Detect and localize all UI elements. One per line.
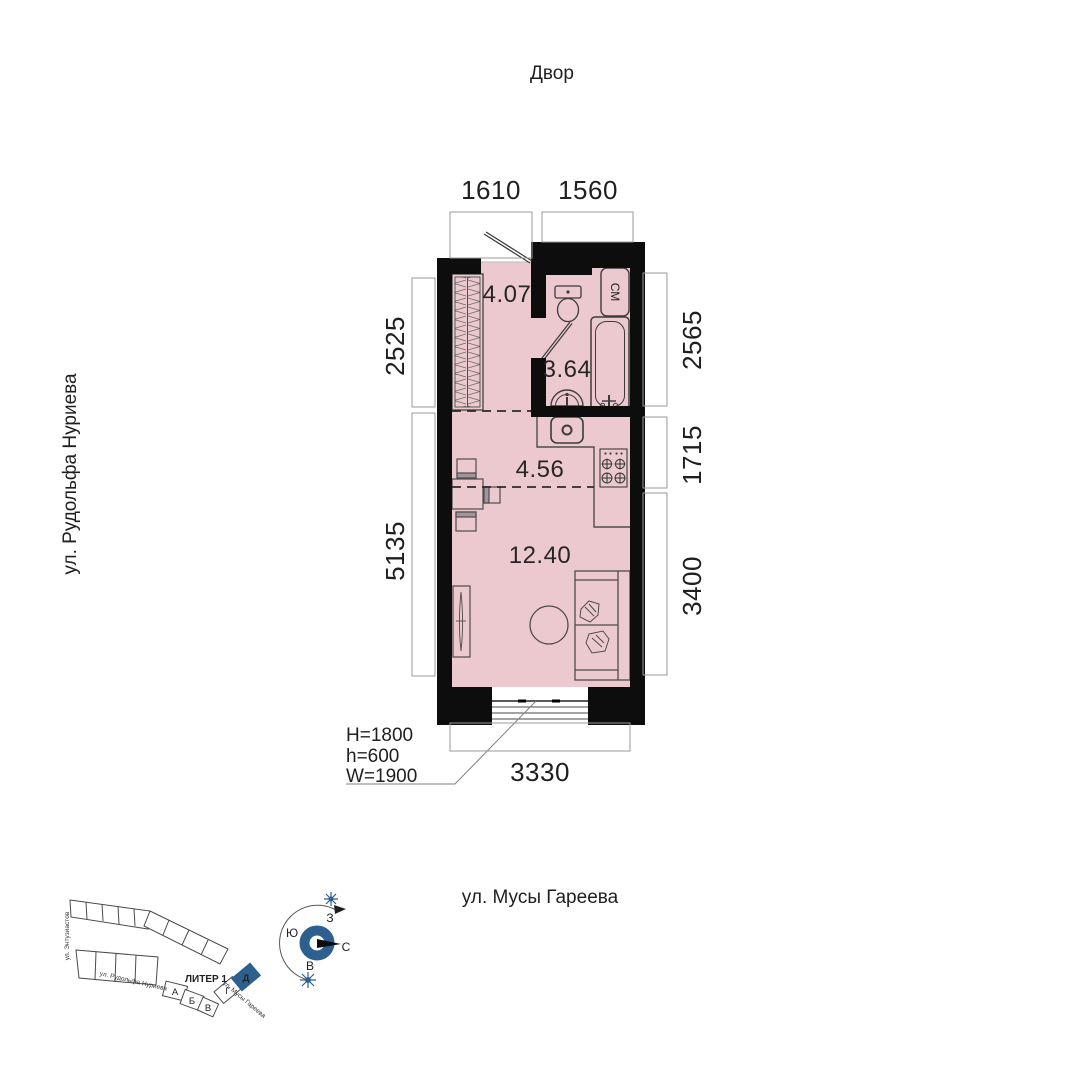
site-plan: А Б В Г Д ЛИТЕР 1 ул. Энтузиастов ул. Ру… [64, 900, 267, 1020]
sun-icon [300, 972, 316, 988]
dim-right-middle: 1715 [677, 425, 707, 485]
block-a-label: А [172, 987, 179, 998]
bed [575, 571, 630, 680]
window [492, 701, 588, 719]
compass: З Ю С В [280, 892, 351, 988]
sun-icon [324, 892, 338, 906]
compass-south: Ю [286, 926, 298, 940]
courtyard-label: Двор [530, 63, 574, 84]
bathroom-area-label: 3.64 [543, 356, 592, 383]
block-v-label: В [205, 1003, 211, 1014]
pillow-icon [586, 631, 609, 653]
dim-right-upper: 2565 [677, 310, 707, 370]
floorplan-drawing: Двор ул. Мусы Гареева ул. Рудольфа Нурие… [0, 0, 1080, 1080]
site-buildings [70, 900, 260, 1017]
washing-machine-label: СМ [608, 283, 622, 302]
compass-arc-arrowhead [334, 905, 346, 914]
kitchen-area-label: 4.56 [516, 456, 565, 483]
washing-machine: СМ [601, 268, 629, 316]
living-area-label: 12.40 [509, 542, 572, 569]
dim-top-right: 1560 [558, 175, 618, 205]
dim-bottom: 3330 [510, 757, 570, 787]
window-spec-label: H=1800 h=600 W=1900 [346, 725, 417, 787]
compass-north: С [342, 940, 351, 954]
svg-text:W=1900: W=1900 [346, 766, 417, 787]
street-label-left: ул. Рудольфа Нуриева [60, 373, 81, 575]
compass-west: З [326, 911, 333, 925]
wardrobe [452, 274, 483, 410]
dim-left-lower: 5135 [380, 521, 410, 581]
dim-left-upper: 2525 [380, 316, 410, 376]
dim-right-lower: 3400 [677, 556, 707, 616]
dim-top-left: 1610 [461, 175, 521, 205]
street-label-bottom: ул. Мусы Гареева [462, 887, 619, 908]
svg-text:h=600: h=600 [346, 746, 399, 767]
hallway-area-label: 4.07 [483, 281, 532, 308]
desk [453, 586, 470, 657]
block-d-label: Д [243, 973, 250, 984]
block-b-label: Б [189, 996, 195, 1007]
liter-label: ЛИТЕР 1 [185, 974, 227, 985]
pouf [530, 606, 568, 644]
floorplan-page: Двор ул. Мусы Гареева ул. Рудольфа Нурие… [0, 0, 1080, 1080]
site-street-vertical: ул. Энтузиастов [64, 911, 71, 960]
svg-text:H=1800: H=1800 [346, 725, 413, 746]
compass-east: В [306, 959, 314, 973]
